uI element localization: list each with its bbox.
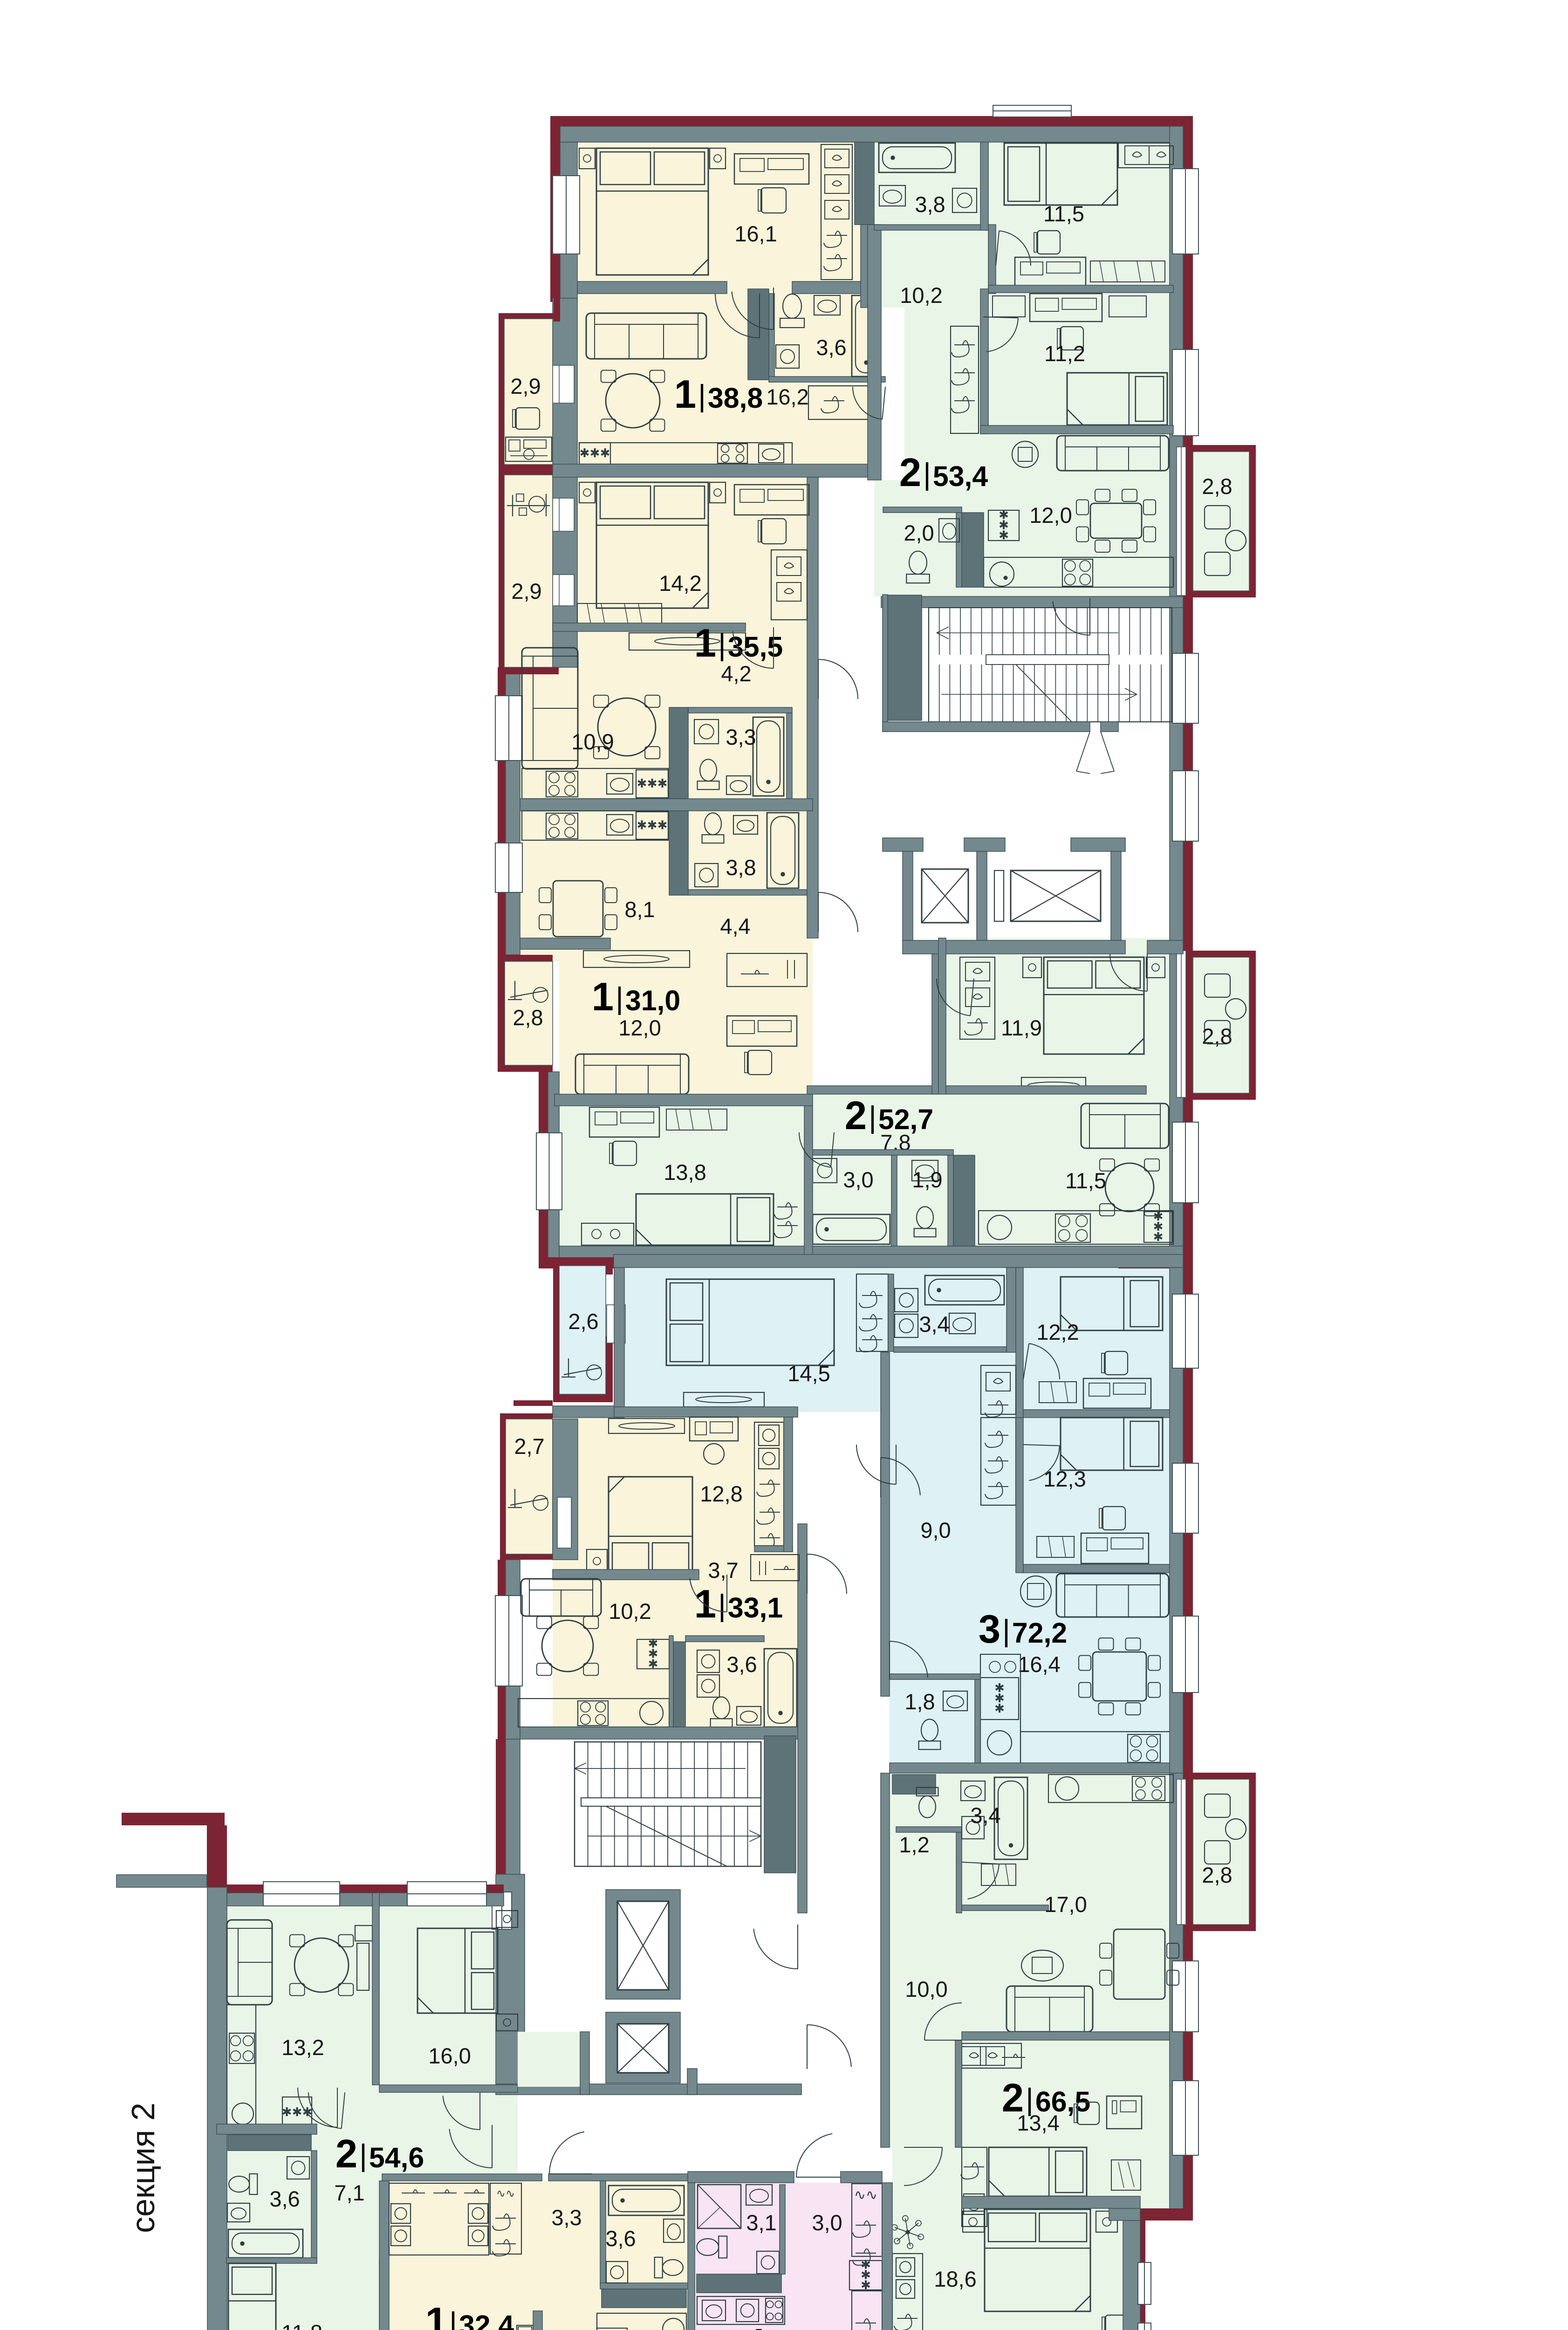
- svg-text:✱: ✱: [647, 818, 657, 832]
- svg-text:✱: ✱: [600, 446, 610, 460]
- svg-text:11,5: 11,5: [1043, 201, 1084, 226]
- svg-text:12,0: 12,0: [1029, 503, 1072, 528]
- svg-text:3,6: 3,6: [816, 335, 846, 360]
- svg-text:секция 2: секция 2: [125, 2103, 161, 2233]
- svg-text:✱: ✱: [590, 446, 600, 460]
- svg-text:✱: ✱: [861, 2278, 871, 2292]
- svg-text:3,4: 3,4: [919, 1312, 949, 1336]
- svg-text:2,9: 2,9: [511, 579, 541, 603]
- svg-text:12,8: 12,8: [700, 1481, 742, 1506]
- svg-text:12,3: 12,3: [1043, 1467, 1086, 1491]
- svg-text:12,0: 12,0: [618, 1015, 661, 1040]
- svg-text:16,4: 16,4: [1018, 1652, 1060, 1677]
- svg-text:3,4: 3,4: [970, 1803, 1000, 1828]
- svg-text:10,2: 10,2: [609, 1599, 651, 1624]
- svg-text:11,2: 11,2: [1044, 341, 1085, 366]
- svg-text:2,8: 2,8: [1202, 1863, 1232, 1887]
- svg-text:✱: ✱: [648, 1657, 658, 1671]
- svg-text:3,6: 3,6: [726, 1652, 757, 1677]
- svg-text:✱: ✱: [282, 2105, 292, 2119]
- svg-text:10,0: 10,0: [905, 1977, 947, 2001]
- svg-text:✱: ✱: [994, 1701, 1005, 1715]
- svg-text:14,2: 14,2: [659, 571, 701, 596]
- svg-text:∿∿: ∿∿: [854, 2187, 877, 2203]
- svg-text:2,0: 2,0: [904, 521, 934, 545]
- svg-text:✱: ✱: [292, 2105, 302, 2119]
- svg-text:16,0: 16,0: [428, 2043, 471, 2068]
- svg-text:13,2: 13,2: [281, 2035, 324, 2060]
- svg-text:13,4: 13,4: [1017, 2111, 1059, 2135]
- svg-text:✱: ✱: [647, 776, 657, 790]
- svg-text:16,1: 16,1: [734, 221, 777, 246]
- svg-text:14,5: 14,5: [787, 1361, 830, 1386]
- svg-text:2,7: 2,7: [514, 1434, 544, 1459]
- svg-text:✱: ✱: [580, 446, 590, 460]
- svg-text:12,2: 12,2: [1036, 1320, 1079, 1344]
- svg-text:3,0: 3,0: [812, 2210, 842, 2235]
- svg-text:3,8: 3,8: [726, 855, 756, 880]
- svg-text:3,1: 3,1: [746, 2210, 776, 2235]
- svg-text:3,8: 3,8: [915, 192, 945, 217]
- svg-text:16,2: 16,2: [766, 384, 808, 409]
- svg-text:✱: ✱: [657, 776, 668, 790]
- svg-text:4,2: 4,2: [721, 661, 751, 686]
- svg-text:10,9: 10,9: [571, 729, 614, 754]
- svg-text:2,8: 2,8: [1202, 474, 1232, 499]
- svg-text:17,0: 17,0: [1044, 1892, 1087, 1917]
- svg-text:11,9: 11,9: [1001, 1015, 1042, 1040]
- svg-text:2,9: 2,9: [510, 374, 541, 398]
- svg-text:∿∿: ∿∿: [496, 2187, 515, 2200]
- svg-text:18,6: 18,6: [934, 2267, 976, 2291]
- svg-text:9,0: 9,0: [920, 1518, 951, 1542]
- svg-text:✱: ✱: [1153, 1230, 1164, 1244]
- svg-text:✱: ✱: [999, 528, 1009, 542]
- svg-text:8,1: 8,1: [624, 897, 655, 922]
- svg-text:7,1: 7,1: [334, 2180, 364, 2205]
- svg-text:2,8: 2,8: [1202, 1024, 1232, 1048]
- svg-text:10,2: 10,2: [900, 283, 942, 308]
- svg-text:1,2: 1,2: [899, 1832, 929, 1857]
- svg-text:13,8: 13,8: [664, 1160, 706, 1185]
- svg-text:✱: ✱: [657, 818, 668, 832]
- svg-text:11,8: 11,8: [281, 2320, 322, 2330]
- svg-text:2,8: 2,8: [513, 1005, 543, 1030]
- svg-text:3,0: 3,0: [843, 1167, 873, 1192]
- svg-text:1,9: 1,9: [912, 1167, 942, 1192]
- svg-text:1,8: 1,8: [904, 1689, 935, 1714]
- svg-text:4,4: 4,4: [720, 914, 750, 939]
- svg-text:11,5: 11,5: [1065, 1168, 1106, 1193]
- svg-text:3,3: 3,3: [551, 2205, 582, 2230]
- svg-text:3,3: 3,3: [726, 725, 756, 749]
- svg-text:3,6: 3,6: [269, 2186, 300, 2211]
- svg-text:✱: ✱: [637, 818, 647, 832]
- svg-text:3,6: 3,6: [605, 2226, 636, 2251]
- svg-text:2,6: 2,6: [568, 1309, 598, 1334]
- svg-text:3,7: 3,7: [708, 1558, 738, 1583]
- svg-text:✱: ✱: [637, 776, 647, 790]
